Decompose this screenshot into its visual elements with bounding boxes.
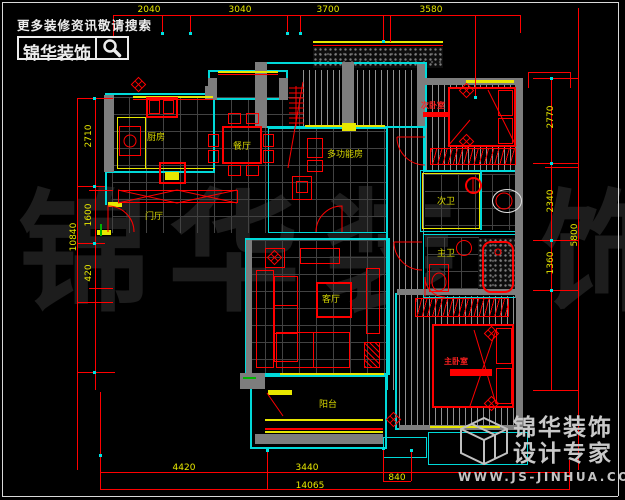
frame-left <box>2 2 3 496</box>
toilet-bowl <box>496 193 512 209</box>
bed2-blanket-fold <box>448 90 516 146</box>
floorplan-canvas: 锦 华 装 饰 <box>0 0 625 500</box>
toilet-bowl <box>432 273 446 291</box>
frame-top <box>2 2 618 3</box>
door-arc-bed1 <box>394 242 422 270</box>
magnifier-icon <box>102 38 122 58</box>
brand-bottom-line1: 锦华装饰 <box>513 416 613 441</box>
door-arc-entry <box>108 206 134 232</box>
brand-logo-text: 锦华装饰 <box>19 38 95 58</box>
balcony-door-leaf <box>267 393 283 416</box>
shoe-cabinet-cross <box>118 190 237 203</box>
brand-bottom-url: WWW.JS-JINHUA.COM <box>458 470 625 484</box>
tub-drain <box>495 249 501 255</box>
brand-logo-box: 锦华装饰 <box>17 36 129 60</box>
magnifier-cell <box>95 38 127 58</box>
frame-bottom <box>2 496 618 497</box>
bed1-blanket-fold <box>470 330 496 406</box>
appliance-drum <box>124 135 136 147</box>
brand-bottom-line2: 设计专家 <box>513 442 613 467</box>
cube-logo-icon <box>458 416 510 466</box>
brand-slogan: 更多装修资讯敬请搜索 <box>17 15 152 34</box>
door-arc-multi <box>316 206 342 232</box>
door-arc-bed2 <box>397 137 425 165</box>
frame-right <box>618 2 619 496</box>
door-arc-bath1 <box>425 277 445 297</box>
